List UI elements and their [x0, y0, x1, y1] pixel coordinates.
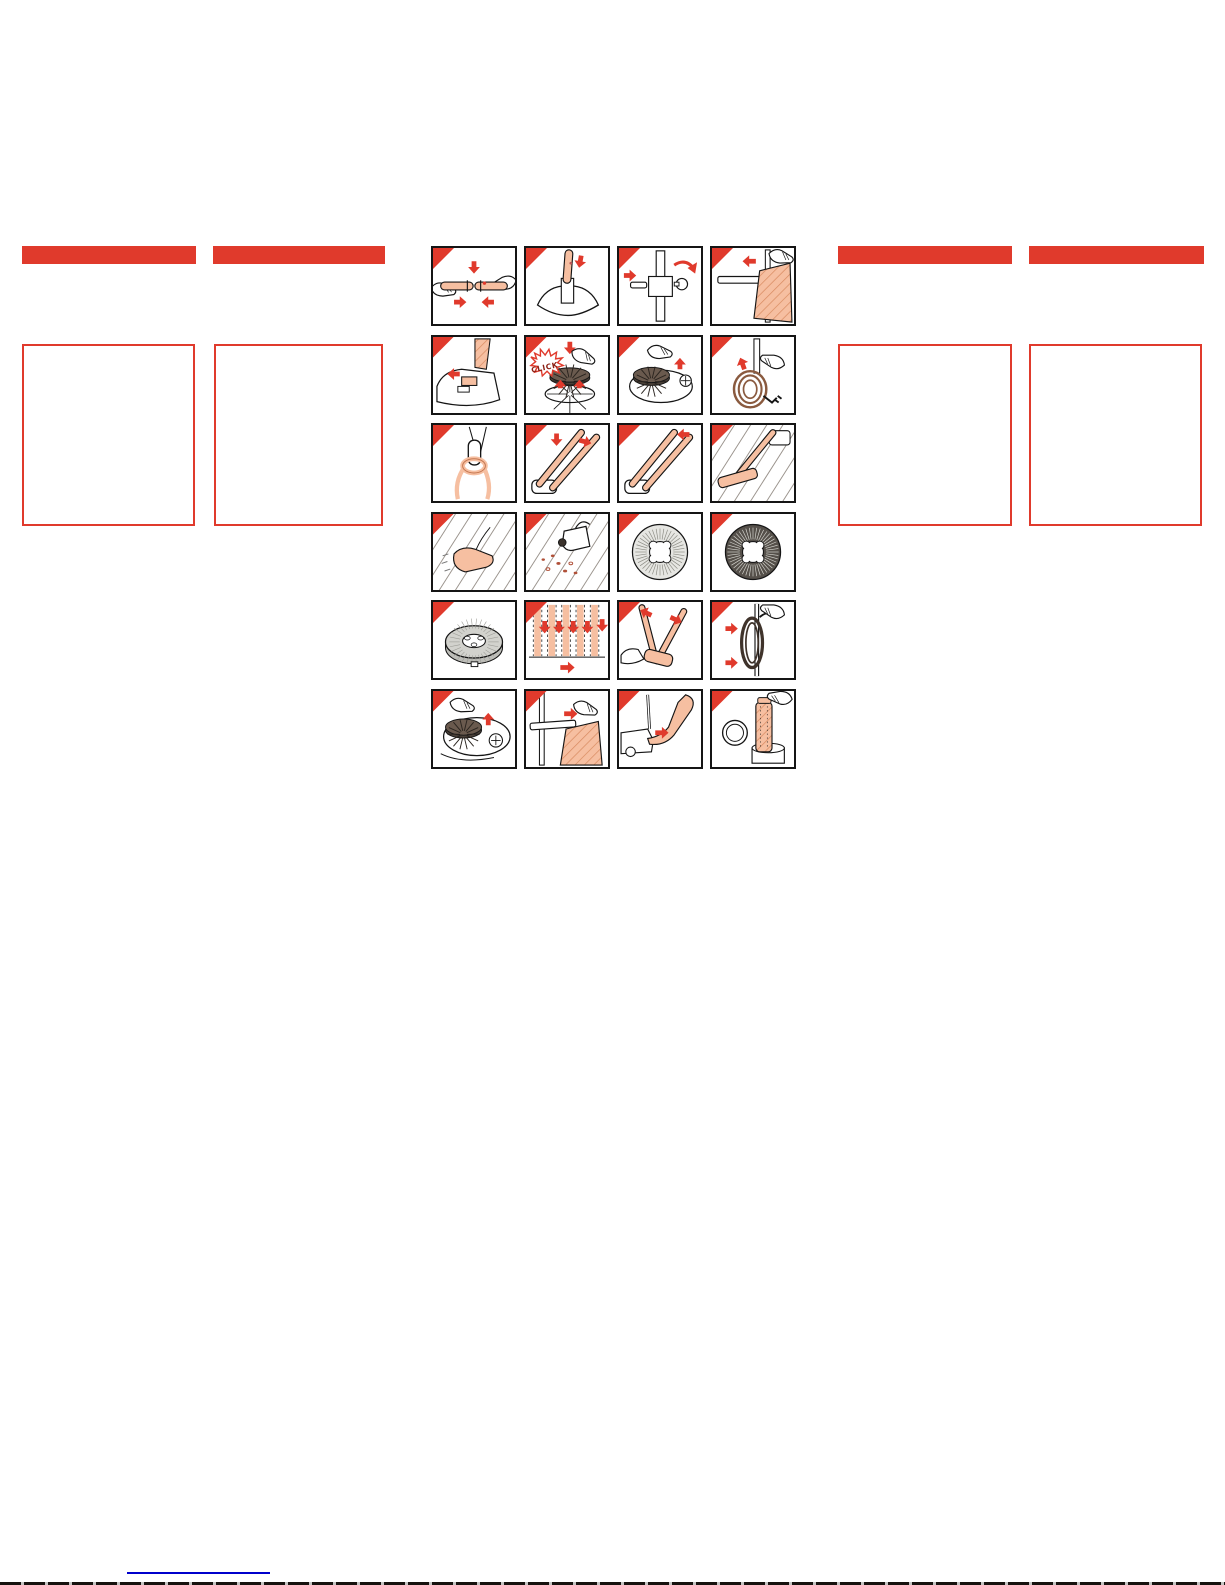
seat-brush-on-machine-icon: [619, 337, 701, 413]
title-bar-right-1: [838, 246, 1012, 264]
wind-cord-for-storage-panel: [710, 600, 796, 680]
fold-handle-to-floor-icon: [619, 602, 701, 678]
empty-bag-into-bin-icon: [712, 691, 794, 767]
attach-bolt-and-knob-panel: [617, 246, 703, 326]
click-brush-onto-spindle-panel: CLICK: [524, 335, 610, 415]
apply-polish-to-floor-icon: [526, 514, 608, 590]
slide-bag-onto-tube-icon: [712, 248, 794, 324]
light-brush-disc-icon: [619, 514, 701, 590]
felt-polishing-pad-icon: [433, 602, 515, 678]
cord-ring-on-handle-icon: [433, 425, 515, 501]
hang-cord-loop-panel: [710, 335, 796, 415]
dark-brush-disc-icon: [712, 514, 794, 590]
insert-handle-into-base-panel: [524, 246, 610, 326]
raise-handle-icon: [619, 425, 701, 501]
hang-cord-loop-icon: [712, 337, 794, 413]
polisher-on-wood-floor-icon: [712, 425, 794, 501]
felt-polishing-pad-panel: [431, 600, 517, 680]
reach-under-machine-icon: [619, 691, 701, 767]
fit-bag-on-tube-icon: [526, 691, 608, 767]
click-brush-onto-spindle-icon: [526, 337, 608, 413]
unfold-handle-icon: [526, 425, 608, 501]
wipe-floor-with-cloth-panel: [431, 512, 517, 592]
title-bar-left-1: [22, 246, 196, 264]
join-handle-halves-icon: [433, 248, 515, 324]
footer-link-underline[interactable]: [127, 1572, 270, 1574]
wipe-floor-with-cloth-icon: [433, 514, 515, 590]
fit-bag-on-tube-panel: [524, 689, 610, 769]
lift-brush-off-machine-icon: [433, 691, 515, 767]
instruction-grid: CLICK: [431, 246, 796, 769]
slide-bag-onto-tube-panel: [710, 246, 796, 326]
fold-handle-to-floor-panel: [617, 600, 703, 680]
text-box-right-1: [838, 344, 1012, 526]
wind-cord-for-storage-icon: [712, 602, 794, 678]
text-box-left-2: [214, 344, 383, 526]
light-brush-disc-panel: [617, 512, 703, 592]
overlapping-passes-diagram-panel: [524, 600, 610, 680]
empty-bag-into-bin-panel: [710, 689, 796, 769]
raise-handle-panel: [617, 423, 703, 503]
apply-polish-to-floor-panel: [524, 512, 610, 592]
reach-under-machine-panel: [617, 689, 703, 769]
attach-bolt-and-knob-icon: [619, 248, 701, 324]
title-bar-right-2: [1029, 246, 1204, 264]
press-release-latch-panel: [431, 335, 517, 415]
join-handle-halves-panel: [431, 246, 517, 326]
manual-page: CLICK: [0, 0, 1225, 1585]
text-box-left-1: [22, 344, 195, 526]
title-bar-left-2: [213, 246, 385, 264]
overlapping-passes-diagram-icon: [526, 602, 608, 678]
seat-brush-on-machine-panel: [617, 335, 703, 415]
unfold-handle-panel: [524, 423, 610, 503]
dark-brush-disc-panel: [710, 512, 796, 592]
polisher-on-wood-floor-panel: [710, 423, 796, 503]
press-release-latch-icon: [433, 337, 515, 413]
insert-handle-into-base-icon: [526, 248, 608, 324]
cord-ring-on-handle-panel: [431, 423, 517, 503]
text-box-right-2: [1029, 344, 1202, 526]
lift-brush-off-machine-panel: [431, 689, 517, 769]
